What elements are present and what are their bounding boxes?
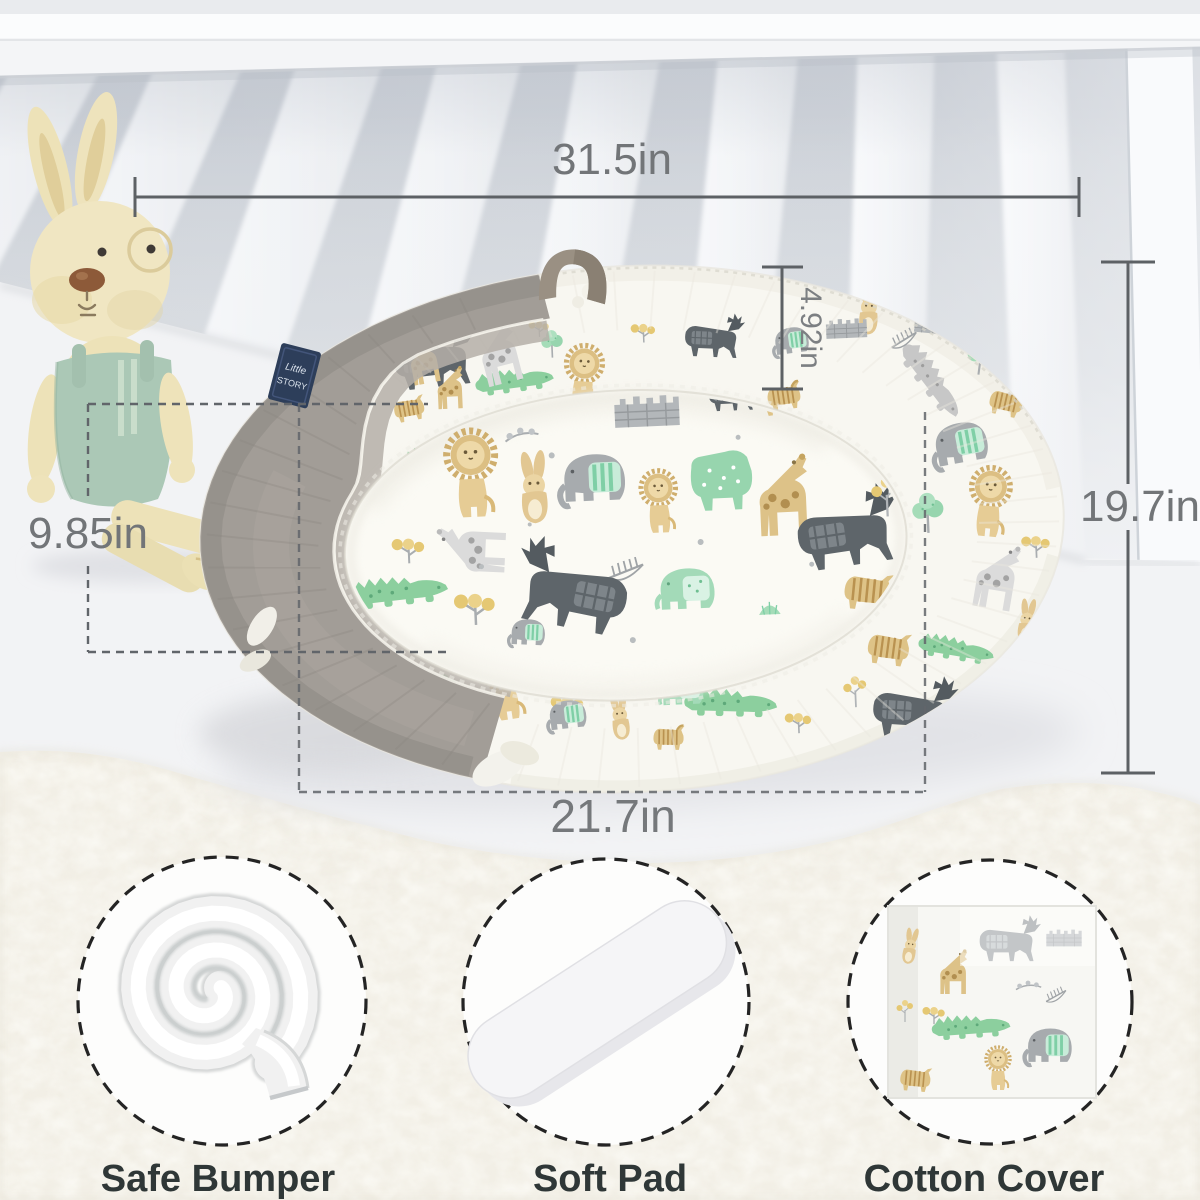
svg-text:19.7in: 19.7in (1080, 482, 1200, 531)
svg-text:21.7in: 21.7in (550, 790, 675, 842)
svg-text:Cotton Cover: Cotton Cover (864, 1158, 1105, 1200)
svg-text:4.92in: 4.92in (794, 287, 827, 369)
svg-text:Soft Pad: Soft Pad (533, 1158, 687, 1200)
svg-text:9.85in: 9.85in (28, 509, 148, 558)
svg-text:Safe Bumper: Safe Bumper (101, 1158, 336, 1200)
svg-text:31.5in: 31.5in (552, 135, 672, 184)
